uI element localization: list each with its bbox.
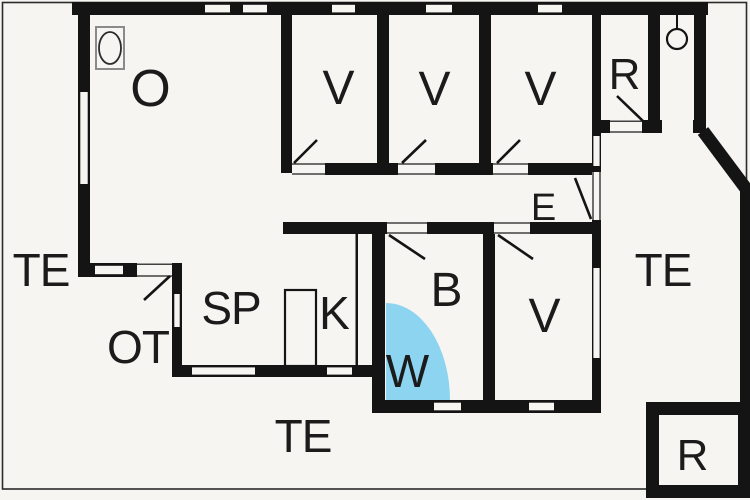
room-label-terrace-left: TE [13,244,70,296]
room-label-storage-top: R [609,50,640,99]
room-label-shower: W [386,345,430,397]
room-label-terrace-right: TE [635,244,692,296]
cupboard-icon [285,290,316,366]
floor-plan: O V V V R E TE OT SP K B W V TE TE R [0,0,750,500]
room-label-entry-hall: E [531,187,555,229]
room-label-terrace-bottom: TE [275,410,332,462]
room-label-bedroom-1: V [322,62,354,115]
room-label-bedroom-4: V [528,290,560,343]
stove-icon [96,27,124,69]
room-label-dining-area: SP [201,282,260,334]
floor-plan-drawing: O V V V R E TE OT SP K B W V TE TE R [0,0,750,500]
room-label-bathroom: B [430,264,461,317]
room-label-storage-annex: R [677,431,708,480]
room-label-kitchen: K [319,287,350,339]
room-label-living-room: O [130,60,169,118]
room-label-bedroom-3: V [524,63,556,116]
room-label-bedroom-2: V [418,63,450,116]
room-label-entry-porch: OT [107,321,170,373]
